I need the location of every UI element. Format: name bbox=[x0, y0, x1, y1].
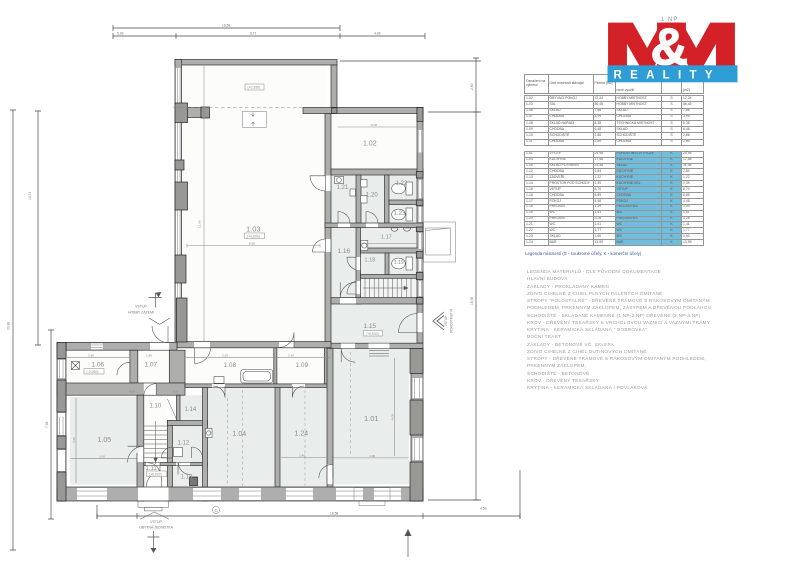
svg-text:1.17: 1.17 bbox=[381, 234, 392, 240]
svg-text:(+0,030): (+0,030) bbox=[366, 332, 379, 336]
svg-text:3,60: 3,60 bbox=[99, 454, 105, 458]
svg-text:14,74: 14,74 bbox=[28, 192, 32, 200]
svg-text:3,08: 3,08 bbox=[369, 454, 375, 458]
svg-text:1.04: 1.04 bbox=[233, 431, 247, 438]
svg-text:1.12: 1.12 bbox=[178, 441, 190, 447]
svg-text:1.16: 1.16 bbox=[338, 248, 351, 255]
svg-text:1.05: 1.05 bbox=[98, 437, 112, 444]
svg-text:1.23: 1.23 bbox=[394, 211, 406, 217]
svg-text:Ø.Ø: Ø.Ø bbox=[129, 390, 135, 394]
svg-text:1.19: 1.19 bbox=[394, 260, 404, 266]
svg-text:16,58: 16,58 bbox=[330, 512, 338, 516]
svg-text:REALITY: REALITY bbox=[614, 70, 721, 82]
svg-text:23,88: 23,88 bbox=[7, 322, 11, 330]
svg-text:1.20: 1.20 bbox=[366, 193, 378, 199]
svg-text:2,40: 2,40 bbox=[299, 454, 305, 458]
svg-text:1.13: 1.13 bbox=[181, 475, 193, 481]
svg-text:2,60: 2,60 bbox=[470, 83, 474, 90]
svg-text:1.15: 1.15 bbox=[364, 323, 377, 330]
svg-text:VSTUP: VSTUP bbox=[150, 520, 162, 524]
svg-text:1.02: 1.02 bbox=[363, 141, 377, 148]
svg-text:1.07: 1.07 bbox=[145, 362, 158, 369]
svg-text:5,93: 5,93 bbox=[117, 32, 124, 36]
svg-text:9,71: 9,71 bbox=[250, 32, 257, 36]
svg-text:1.22: 1.22 bbox=[396, 181, 408, 187]
svg-text:4,58: 4,58 bbox=[480, 507, 487, 511]
svg-text:C: C bbox=[215, 508, 219, 513]
svg-text:1.24: 1.24 bbox=[295, 431, 309, 438]
svg-text:1,80: 1,80 bbox=[146, 353, 152, 357]
svg-text:1.18: 1.18 bbox=[365, 258, 376, 264]
svg-text:(-0,020): (-0,020) bbox=[87, 370, 99, 374]
svg-text:2,40: 2,40 bbox=[288, 353, 294, 357]
svg-text:1.09: 1.09 bbox=[296, 362, 309, 369]
svg-text:(+0,020): (+0,020) bbox=[149, 472, 162, 476]
svg-text:(+0,000): (+0,000) bbox=[247, 234, 260, 238]
svg-text:1.14: 1.14 bbox=[185, 407, 197, 413]
svg-text:1.08: 1.08 bbox=[224, 362, 237, 369]
svg-text:(+0,350): (+0,350) bbox=[248, 86, 261, 90]
svg-text:1.21: 1.21 bbox=[337, 185, 349, 191]
svg-text:1.01: 1.01 bbox=[364, 414, 379, 423]
svg-text:1.06: 1.06 bbox=[92, 362, 105, 369]
svg-text:1.10: 1.10 bbox=[150, 404, 162, 410]
svg-text:VSTUP: VSTUP bbox=[135, 305, 147, 309]
svg-text:8,50: 8,50 bbox=[249, 242, 255, 246]
svg-text:3,80: 3,80 bbox=[88, 353, 94, 357]
svg-text:VSTUP: VSTUP bbox=[444, 316, 448, 327]
svg-text:2,65: 2,65 bbox=[222, 353, 228, 357]
svg-text:HOBBY ZÁZEMÍ: HOBBY ZÁZEMÍ bbox=[128, 311, 154, 315]
svg-text:POHOSTINSTVÍ: POHOSTINSTVÍ bbox=[450, 309, 454, 333]
svg-text:OBYTNÁ JEDNOTKA: OBYTNÁ JEDNOTKA bbox=[139, 526, 174, 530]
svg-text:7,96: 7,96 bbox=[45, 421, 49, 428]
svg-text:4,08: 4,08 bbox=[374, 32, 381, 36]
svg-text:9,08: 9,08 bbox=[371, 123, 377, 127]
svg-text:1.03: 1.03 bbox=[246, 225, 261, 234]
svg-text:Ø.Ø: Ø.Ø bbox=[173, 390, 179, 394]
svg-text:11,08: 11,08 bbox=[198, 220, 202, 228]
svg-text:16,58: 16,58 bbox=[222, 24, 230, 28]
svg-text:18,95: 18,95 bbox=[470, 297, 474, 305]
svg-text:4,55: 4,55 bbox=[72, 437, 76, 443]
svg-text:8,05: 8,05 bbox=[391, 414, 395, 420]
